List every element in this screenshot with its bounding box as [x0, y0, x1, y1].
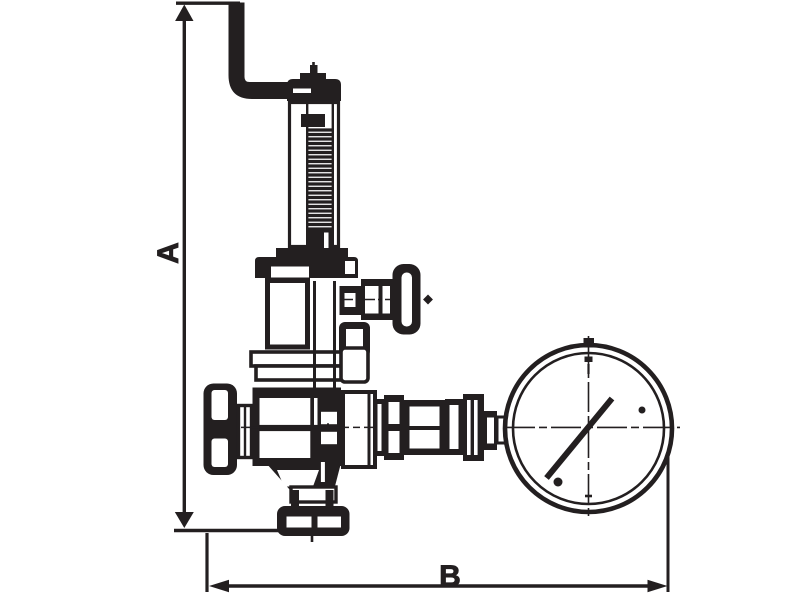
svg-text:B: B: [439, 560, 461, 593]
svg-text:A: A: [152, 242, 185, 264]
